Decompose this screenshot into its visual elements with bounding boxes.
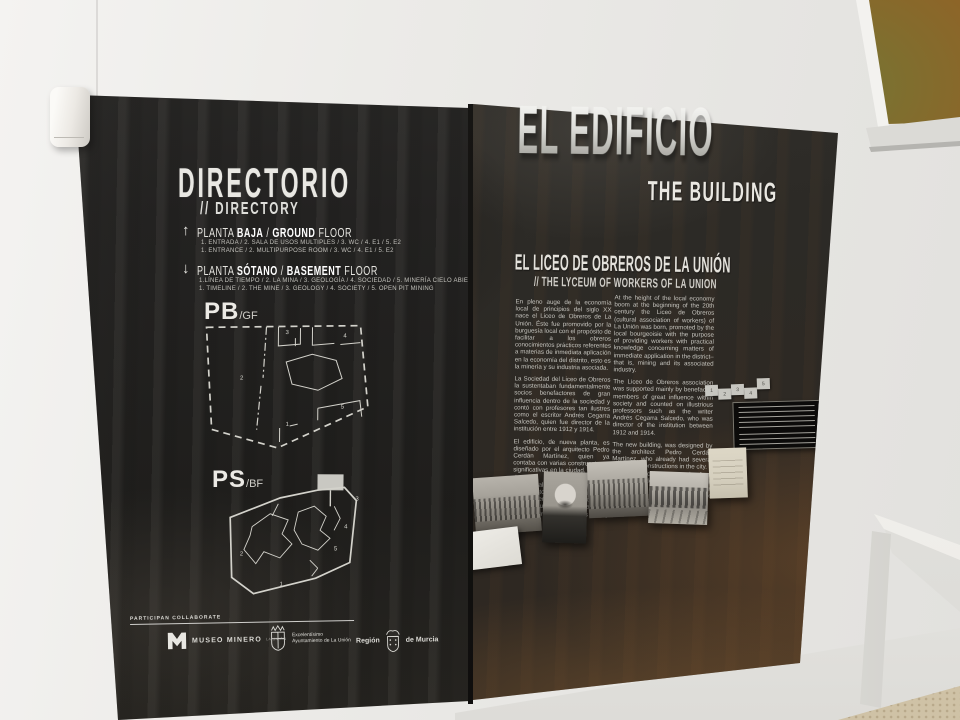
ayuntamiento-line2: Ayuntamiento de La Unión bbox=[292, 637, 351, 644]
murcia-crest-icon bbox=[384, 628, 402, 652]
paragraph-es: En pleno auge de la economía local de pr… bbox=[515, 298, 612, 371]
arrow-up-icon: ↑ bbox=[182, 222, 190, 239]
ayuntamiento-label: Excelentísimo Ayuntamiento de La Unión bbox=[292, 631, 351, 644]
photo-crowd-outside-building bbox=[472, 474, 542, 535]
room-number: 2 bbox=[240, 376, 244, 382]
basement-floor-row: ↓PLANTA SÓTANO / BASEMENT FLOOR bbox=[182, 260, 482, 278]
basement-floor-list-en: 1. TIMELINE / 2. THE MINE / 3. GEOLOGY /… bbox=[199, 286, 434, 292]
photo-minimap: 1 2 3 4 5 bbox=[705, 375, 776, 401]
photo-group-at-tables bbox=[648, 471, 709, 525]
logo-region-murcia: Región de Murcia bbox=[356, 627, 439, 652]
wall-corner-line bbox=[96, 0, 98, 96]
region-label-left: Región bbox=[356, 637, 380, 644]
ground-floor-row: ↑PLANTA BAJA / GROUND FLOOR bbox=[182, 222, 482, 240]
paragraph-es: La Sociedad del Liceo de Obreros la sust… bbox=[514, 375, 611, 434]
ground-floor-heading: PLANTA BAJA / GROUND FLOOR bbox=[197, 226, 352, 240]
minimap-tab: 4 bbox=[744, 387, 757, 398]
basement-floor-list-es: 1.LÍNEA DE TIEMPO / 2. LA MINA / 3. GEOL… bbox=[199, 278, 481, 284]
ground-floor-list-en: 1. ENTRANCE / 2. MULTIPURPOSE ROOM / 3. … bbox=[201, 248, 394, 254]
heading-part-bold: SÓTANO bbox=[236, 264, 277, 278]
floorplan-ground: 2 3 4 5 1 bbox=[199, 319, 372, 452]
room-number: 3 bbox=[355, 497, 359, 503]
logo-ayuntamiento: Excelentísimo Ayuntamiento de La Unión bbox=[268, 623, 351, 652]
heading-part-bold: BASEMENT bbox=[286, 264, 341, 278]
ayuntamiento-crest-icon bbox=[268, 624, 288, 652]
heading-part: FLOOR bbox=[341, 264, 378, 278]
room-number: 5 bbox=[334, 546, 338, 552]
photo-group-indoors bbox=[587, 460, 649, 519]
minimap-tab: 5 bbox=[757, 378, 770, 389]
paragraph-en: The Liceo de Obreros association was sup… bbox=[613, 379, 714, 438]
museo-minero-label: MUSEO MINERO bbox=[192, 636, 262, 644]
basement-floor-heading: PLANTA SÓTANO / BASEMENT FLOOR bbox=[197, 264, 378, 278]
minimap-tab: 2 bbox=[718, 388, 731, 399]
photo-captions-panel bbox=[732, 400, 821, 450]
museo-minero-m-icon bbox=[166, 631, 188, 651]
panel-title-metal-letters: EL EDIFICIO bbox=[517, 96, 714, 167]
room-number: 1 bbox=[286, 422, 290, 428]
room-number: 4 bbox=[344, 524, 348, 530]
museum-wall-photo: DIRECTORIO // DIRECTORY ↑PLANTA BAJA / G… bbox=[0, 0, 960, 720]
heading-part: / bbox=[263, 226, 272, 240]
room-number: 5 bbox=[341, 404, 345, 410]
room-number: 2 bbox=[240, 552, 244, 558]
floorplan-basement: 3 4 5 2 1 bbox=[221, 471, 367, 607]
room-number: 3 bbox=[285, 330, 289, 336]
section-title-en: // THE LYCEUM OF WORKERS OF LA UNION bbox=[534, 275, 717, 292]
heading-part: PLANTA bbox=[197, 226, 237, 240]
ground-floor-list-es: 1. ENTRADA / 2. SALA DE USOS MULTIPLES /… bbox=[201, 240, 401, 246]
minimap-tab: 1 bbox=[705, 385, 718, 396]
panel-seam bbox=[468, 104, 473, 704]
region-label-right: de Murcia bbox=[406, 636, 439, 644]
motion-sensor bbox=[50, 87, 90, 147]
heading-part: PLANTA bbox=[197, 264, 237, 278]
directory-subtitle: // DIRECTORY bbox=[200, 198, 300, 218]
photo-building-sketch bbox=[708, 447, 748, 498]
heading-part-bold: GROUND bbox=[272, 226, 315, 240]
caption-text-lines bbox=[739, 405, 816, 431]
heading-part: / bbox=[277, 264, 286, 278]
heading-part-bold: BAJA bbox=[236, 226, 263, 240]
heading-part: FLOOR bbox=[315, 226, 352, 240]
photo-portrait-man bbox=[542, 471, 588, 543]
caption-text-lines bbox=[739, 432, 815, 447]
paragraph-en: At the height of the local economy boom … bbox=[613, 294, 714, 375]
room-number: 4 bbox=[343, 333, 347, 339]
minimap-tab: 3 bbox=[731, 384, 744, 395]
arrow-down-icon: ↓ bbox=[182, 260, 190, 277]
building-title-en: THE BUILDING bbox=[648, 175, 778, 209]
